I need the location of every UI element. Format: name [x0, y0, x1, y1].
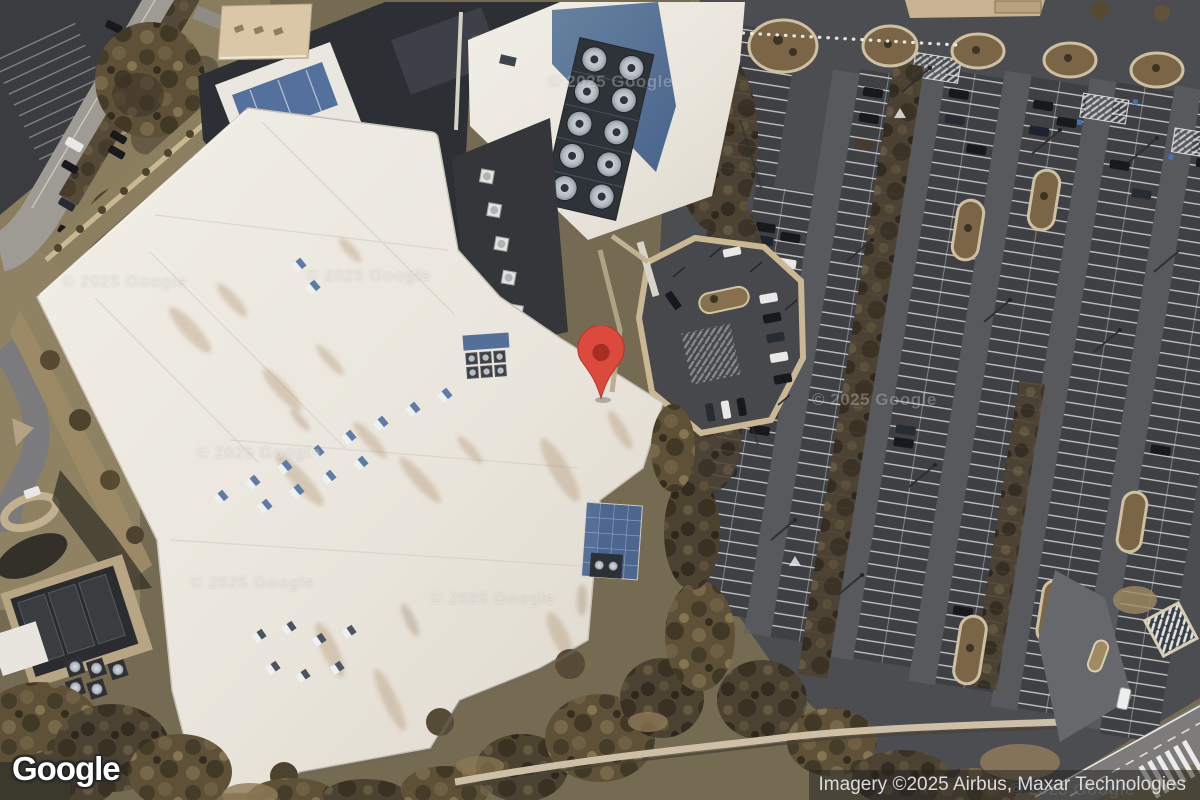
map-watermark: © 2025 Google — [430, 589, 555, 609]
map-watermark: © 2025 Google — [190, 573, 315, 593]
map-watermark: © 2025 Google — [196, 443, 321, 463]
map-watermark: © 2025 Google — [812, 390, 937, 410]
map-pin[interactable] — [576, 326, 628, 404]
google-logo[interactable]: Google — [12, 750, 120, 788]
map-watermark: © 2025 Google — [548, 72, 673, 92]
map-canvas[interactable]: © 2025 Google © 2025 Google © 2025 Googl… — [0, 0, 1200, 800]
imagery-attribution: Imagery ©2025 Airbus, Maxar Technologies — [809, 770, 1200, 800]
map-watermark: © 2025 Google — [62, 272, 187, 292]
map-watermark: © 2025 Google — [306, 266, 431, 286]
